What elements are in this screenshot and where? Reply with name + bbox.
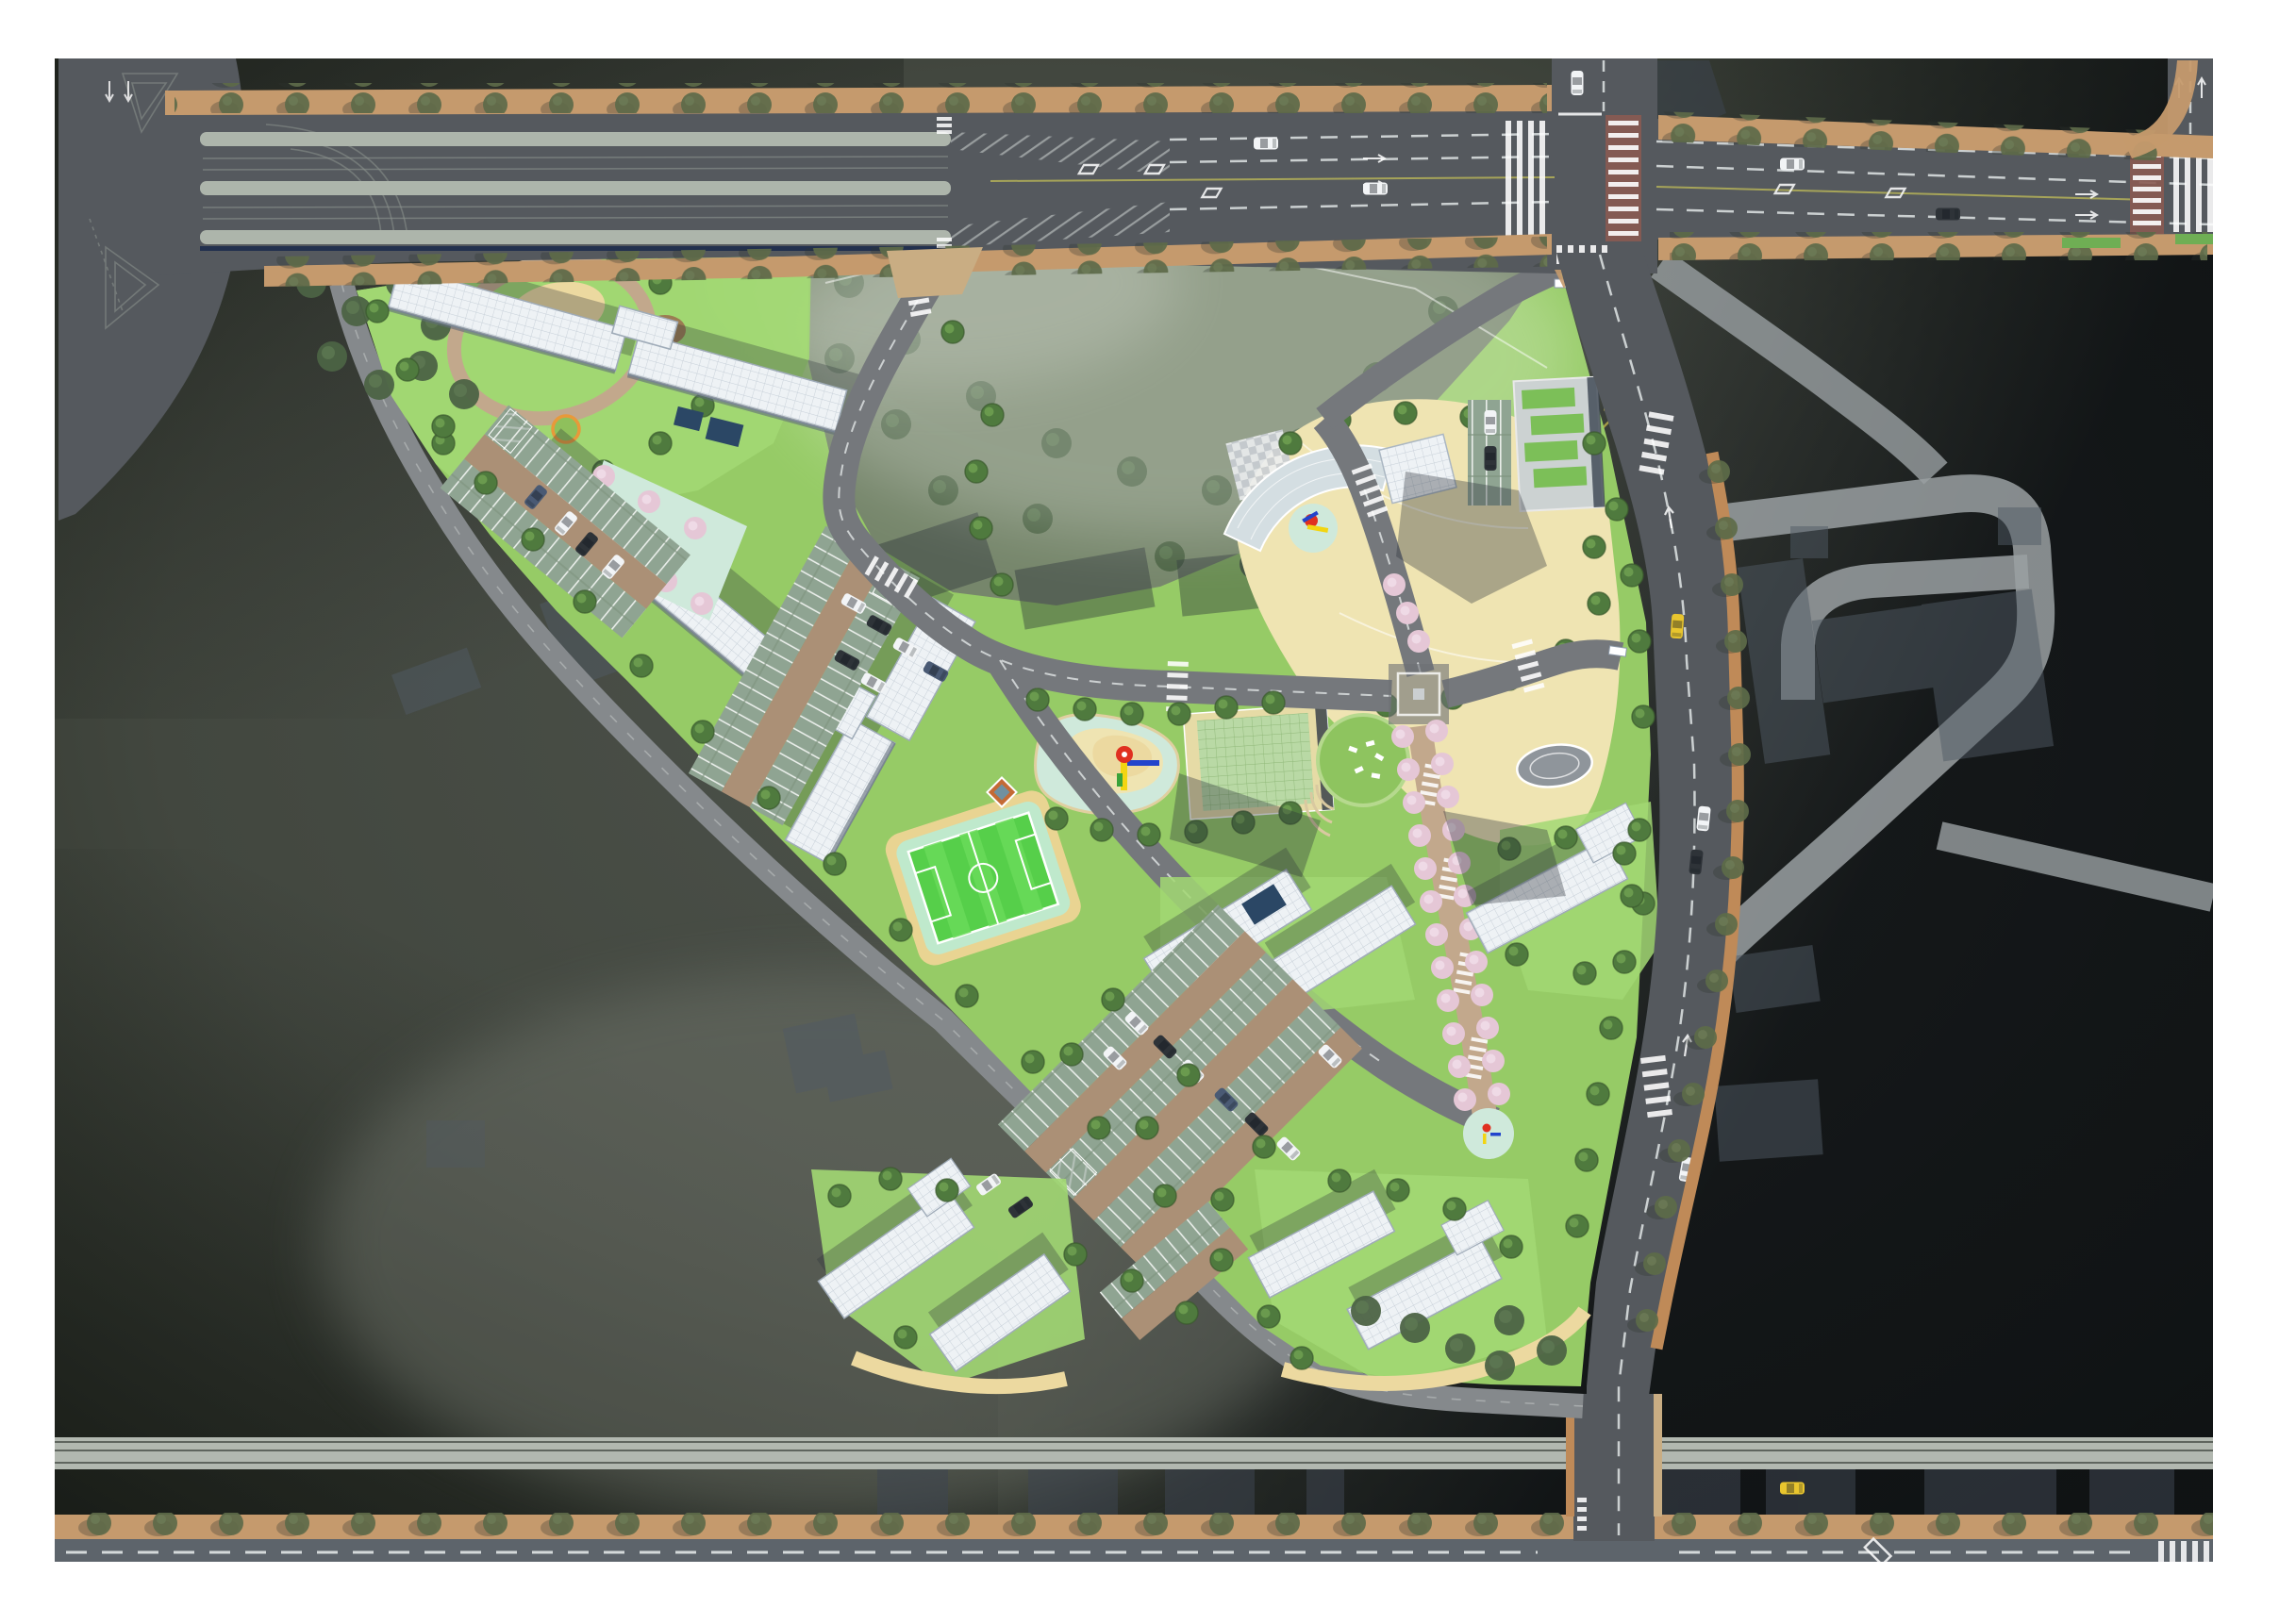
site-plan-page (0, 0, 2296, 1624)
avenue-end-plaza (1463, 1108, 1514, 1159)
canal-band (55, 1437, 2213, 1469)
verge-strip (2062, 238, 2121, 248)
yellow-car (1780, 1483, 1805, 1495)
internal-crossroad (1389, 664, 1449, 724)
master-plan-rendering (0, 0, 2296, 1624)
gate-house (1608, 646, 1626, 656)
bottom-street-trees (55, 1513, 2213, 1543)
